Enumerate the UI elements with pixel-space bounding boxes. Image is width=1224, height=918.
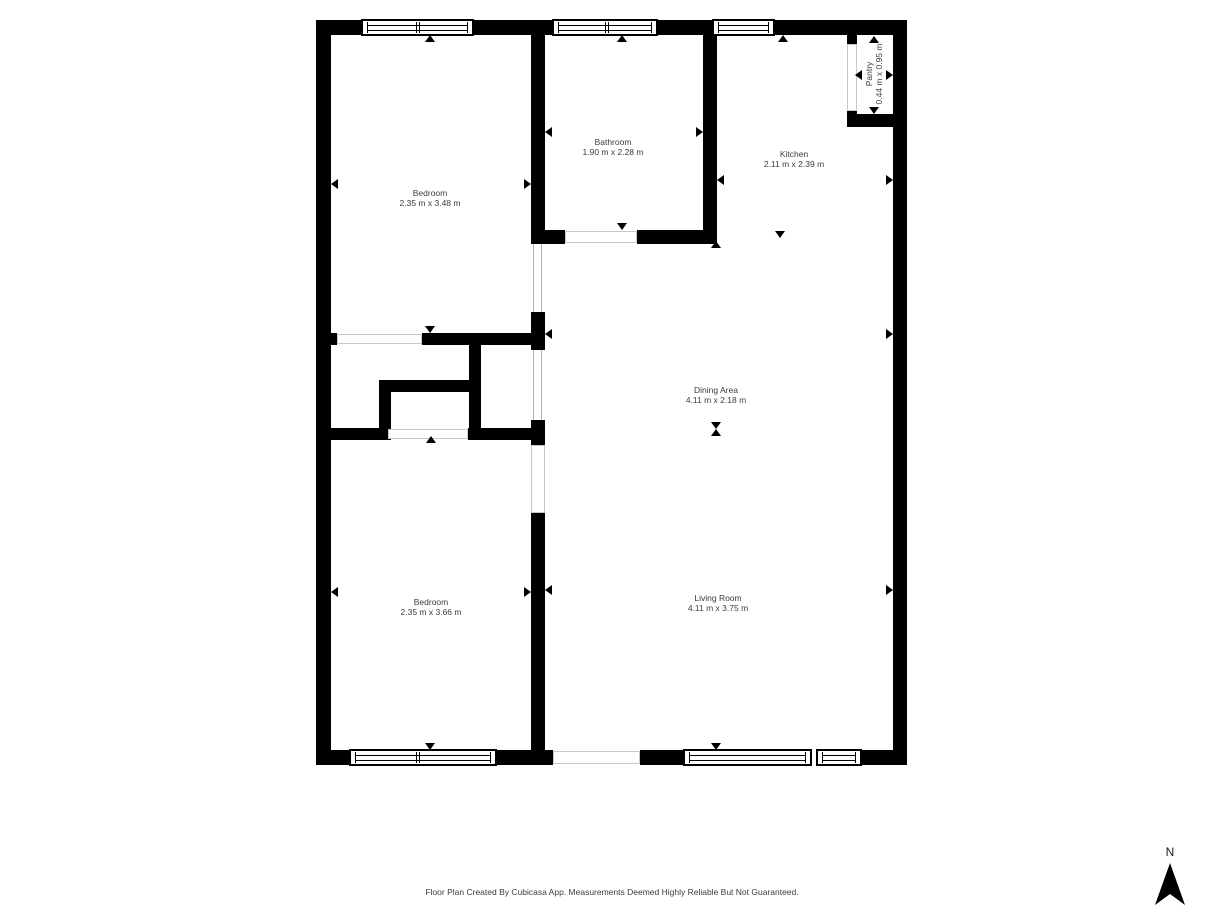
window-mullion (490, 752, 491, 763)
wall (893, 20, 907, 765)
room-label: Living Room4.11 m x 3.75 m (688, 593, 748, 613)
room-name: Pantry (864, 44, 874, 105)
room-label: Kitchen2.11 m x 2.39 m (764, 149, 824, 169)
footer-disclaimer: Floor Plan Created By Cubicasa App. Meas… (0, 887, 1224, 897)
wall (531, 420, 545, 445)
window-frame-line (718, 30, 769, 31)
window-mullion (558, 22, 559, 33)
dimension-arrow-icon (426, 436, 436, 443)
window-mullion (822, 752, 823, 763)
window-mullion (608, 22, 609, 33)
dimension-arrow-icon (711, 743, 721, 750)
door-opening (531, 445, 545, 513)
wall (637, 230, 717, 244)
window-mullion (367, 22, 368, 33)
floor-plan-page: Bedroom2.35 m x 3.48 mBathroom1.90 m x 2… (0, 0, 1224, 918)
wall (847, 114, 907, 127)
window-frame-line (689, 755, 806, 756)
wall (847, 21, 857, 44)
dimension-arrow-icon (711, 241, 721, 248)
room-dimensions: 4.11 m x 3.75 m (688, 603, 748, 613)
wall (316, 750, 349, 765)
window (816, 749, 862, 766)
window-mullion (805, 752, 806, 763)
window-mullion (651, 22, 652, 33)
window-frame-line (355, 755, 491, 756)
dimension-arrow-icon (717, 175, 724, 185)
compass-north-label: N (1148, 845, 1192, 859)
wall (531, 513, 545, 765)
room-dimensions: 1.90 m x 2.28 m (583, 147, 644, 157)
window-mullion (419, 22, 420, 33)
window-mullion (467, 22, 468, 33)
room-dimensions: 2.11 m x 2.39 m (764, 159, 824, 169)
window-mullion (355, 752, 356, 763)
room-label: Dining Area4.11 m x 2.18 m (686, 385, 746, 405)
window-frame-line (367, 30, 468, 31)
dimension-arrow-icon (775, 231, 785, 238)
dimension-arrow-icon (545, 329, 552, 339)
wall (379, 380, 481, 392)
open-boundary (533, 244, 542, 312)
dimension-arrow-icon (886, 175, 893, 185)
open-boundary (533, 350, 542, 420)
room-label: Pantry0.44 m x 0.95 m (864, 44, 884, 105)
dimension-arrow-icon (425, 743, 435, 750)
dimension-arrow-icon (617, 35, 627, 42)
wall (316, 20, 331, 765)
dimension-arrow-icon (524, 179, 531, 189)
room-label: Bedroom2.35 m x 3.48 m (400, 188, 461, 208)
wall (316, 428, 388, 440)
room-dimensions: 2.35 m x 3.66 m (401, 607, 462, 617)
wall (862, 750, 907, 765)
dimension-arrow-icon (869, 36, 879, 43)
room-dimensions: 2.35 m x 3.48 m (400, 198, 461, 208)
dimension-arrow-icon (425, 326, 435, 333)
wall (640, 750, 683, 765)
window-mullion (855, 752, 856, 763)
window-mullion (419, 752, 420, 763)
door-opening (565, 231, 637, 243)
window (712, 19, 775, 36)
wall (474, 20, 552, 35)
room-name: Bedroom (400, 188, 461, 198)
window-frame-line (718, 25, 769, 26)
wall (658, 20, 712, 35)
window-frame-line (355, 760, 491, 761)
dimension-arrow-icon (886, 70, 893, 80)
dimension-arrow-icon (886, 585, 893, 595)
north-arrow-icon (1152, 861, 1188, 907)
window-frame-line (367, 25, 468, 26)
wall (422, 333, 545, 345)
window (349, 749, 497, 766)
wall (703, 35, 717, 244)
room-name: Kitchen (764, 149, 824, 159)
room-name: Dining Area (686, 385, 746, 395)
window-mullion (416, 22, 417, 33)
wall (531, 35, 545, 244)
room-dimensions: 0.44 m x 0.95 m (874, 44, 884, 105)
wall (469, 345, 481, 440)
door-opening (337, 334, 422, 344)
window-mullion (768, 22, 769, 33)
door-opening (553, 751, 640, 764)
wall (531, 230, 565, 244)
dimension-arrow-icon (886, 329, 893, 339)
window-mullion (605, 22, 606, 33)
compass: N (1148, 845, 1192, 911)
dimension-arrow-icon (696, 127, 703, 137)
window-frame-line (822, 755, 856, 756)
window-frame-line (822, 760, 856, 761)
dimension-arrow-icon (711, 422, 721, 429)
dimension-arrow-icon (545, 585, 552, 595)
wall (775, 20, 907, 35)
room-name: Living Room (688, 593, 748, 603)
dimension-arrow-icon (617, 223, 627, 230)
floor-plan-canvas: Bedroom2.35 m x 3.48 mBathroom1.90 m x 2… (0, 0, 1224, 918)
window-mullion (718, 22, 719, 33)
window (361, 19, 474, 36)
room-name: Bathroom (583, 137, 644, 147)
room-label: Bathroom1.90 m x 2.28 m (583, 137, 644, 157)
dimension-arrow-icon (855, 70, 862, 80)
dimension-arrow-icon (524, 587, 531, 597)
window-frame-line (689, 760, 806, 761)
dimension-arrow-icon (425, 35, 435, 42)
room-name: Bedroom (401, 597, 462, 607)
dimension-arrow-icon (331, 179, 338, 189)
room-dimensions: 4.11 m x 2.18 m (686, 395, 746, 405)
dimension-arrow-icon (869, 107, 879, 114)
dimension-arrow-icon (331, 587, 338, 597)
window (683, 749, 812, 766)
dimension-arrow-icon (711, 429, 721, 436)
window (552, 19, 658, 36)
room-label: Bedroom2.35 m x 3.66 m (401, 597, 462, 617)
wall (531, 312, 545, 350)
window-mullion (416, 752, 417, 763)
window-mullion (689, 752, 690, 763)
dimension-arrow-icon (778, 35, 788, 42)
dimension-arrow-icon (545, 127, 552, 137)
